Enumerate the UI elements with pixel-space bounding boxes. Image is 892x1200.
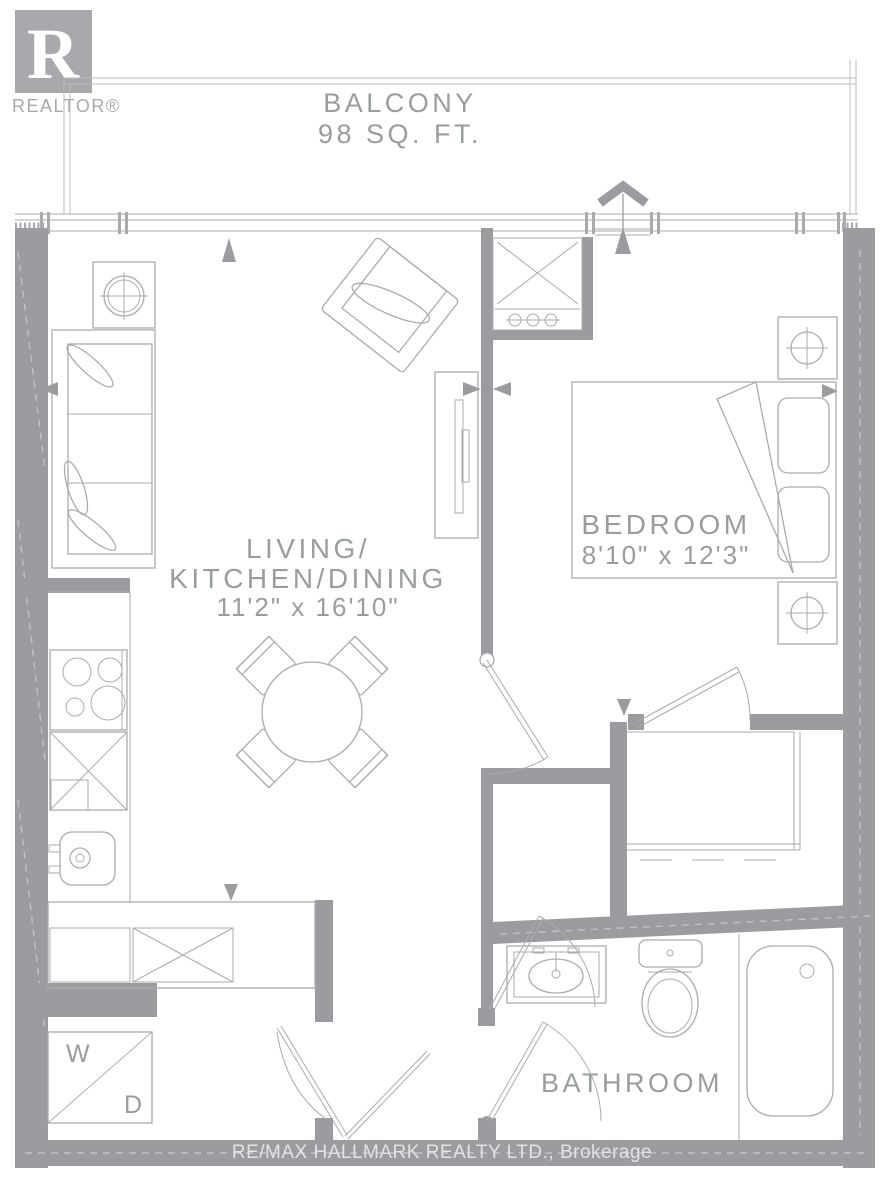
left-wall [15,228,48,1168]
living-dims-label: 11'2" x 16'10" [216,592,399,622]
vanity-sink [507,946,606,1003]
tv-console [435,372,478,538]
hall-side-wall [481,784,493,1008]
arrow-icon [222,238,236,262]
hall-door [480,653,548,774]
bedroom-door [637,667,750,727]
kitchen-sink [49,832,115,885]
toilet [639,940,702,1037]
bedroom-dims-label: 8'10" x 12'3" [582,540,751,570]
bedroom-entry-wall [750,714,845,730]
bathtub [739,934,833,1140]
dryer-label: D [124,1091,144,1119]
hall-wall [481,768,627,784]
arrow-icon [224,884,238,901]
bedroom-door-post [628,714,644,730]
closet-side-wall [610,722,627,918]
bathroom: BATHROOM [489,916,833,1140]
living-room: LIVING/ KITCHEN/DINING 11'2" x 16'10" [52,237,478,788]
hvac-controls-icon [506,314,560,326]
sofa-pillow [64,505,120,556]
window-wall [15,186,858,254]
living-label-line1: LIVING/ [246,533,370,564]
right-wall [843,228,875,1168]
entry-door [277,1026,347,1137]
entry-door [345,1051,430,1139]
sofa-pillow [60,459,93,517]
realtor-logo-letter: R [27,14,80,94]
cabinet [50,732,127,810]
nightstand [778,582,837,644]
entry-wall-stub [315,900,333,1022]
realtor-logo: R REALTOR® [12,10,121,116]
living-label-line2: KITCHEN/DINING [169,563,447,594]
nightstand [778,317,837,379]
kitchen: W D [48,592,315,1123]
sofa [52,330,155,568]
side-table [93,262,155,328]
kitchen-wall-stub [15,578,130,593]
sofa-pillow [62,340,117,392]
hvac-closet [482,237,593,340]
balcony-label: BALCONY [323,88,477,118]
cooktop [50,650,127,730]
exterior-walls [15,228,875,1168]
bathroom-wall [493,904,875,944]
arrow-icon [617,699,631,716]
washer-dryer: W D [48,1032,152,1123]
dining-table [236,636,387,787]
bedroom-label: BEDROOM [581,509,750,540]
realtor-brand-label: REALTOR® [12,96,121,116]
lower-counter [48,902,315,988]
interior-walls [15,228,875,1144]
armchair [321,237,460,374]
entry-post-left [315,1118,333,1144]
balcony-label-group: BALCONY 98 SQ. FT. [318,88,482,149]
bath-door-post [478,1008,495,1026]
closet [627,732,800,860]
arrow-icon [493,382,511,396]
brokerage-label: RE/MAX HALLMARK REALTY LTD., Brokerage [232,1142,652,1163]
bathroom-label: BATHROOM [541,1068,723,1098]
washer-label: W [66,1040,92,1068]
balcony-area-label: 98 SQ. FT. [318,119,482,149]
floor-plan: R REALTOR® BALCONY 98 SQ. FT. [0,0,892,1200]
